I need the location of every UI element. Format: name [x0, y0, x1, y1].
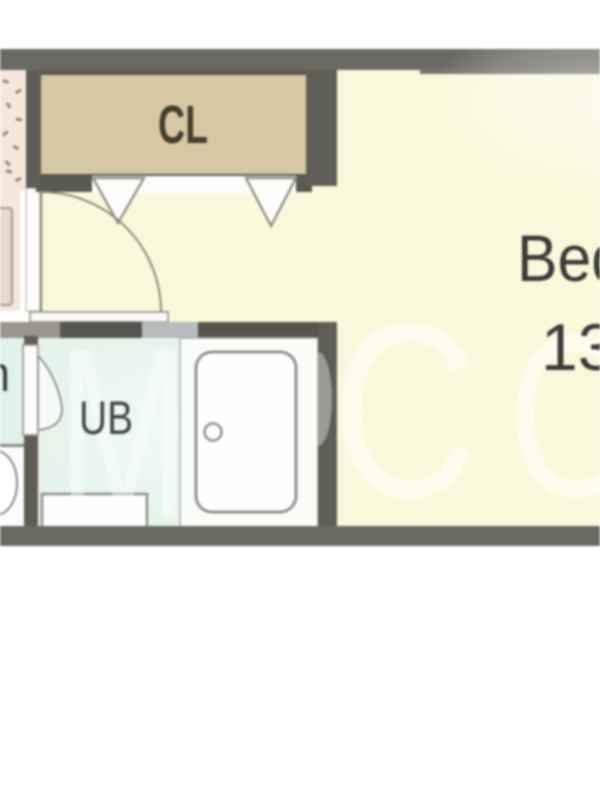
svg-text:Bed: Bed: [517, 221, 600, 295]
svg-text:UB: UB: [79, 391, 133, 444]
svg-text:n: n: [0, 346, 10, 402]
svg-text:13.: 13.: [541, 310, 600, 384]
svg-text:C: C: [332, 271, 478, 550]
svg-text:CL: CL: [158, 95, 208, 155]
